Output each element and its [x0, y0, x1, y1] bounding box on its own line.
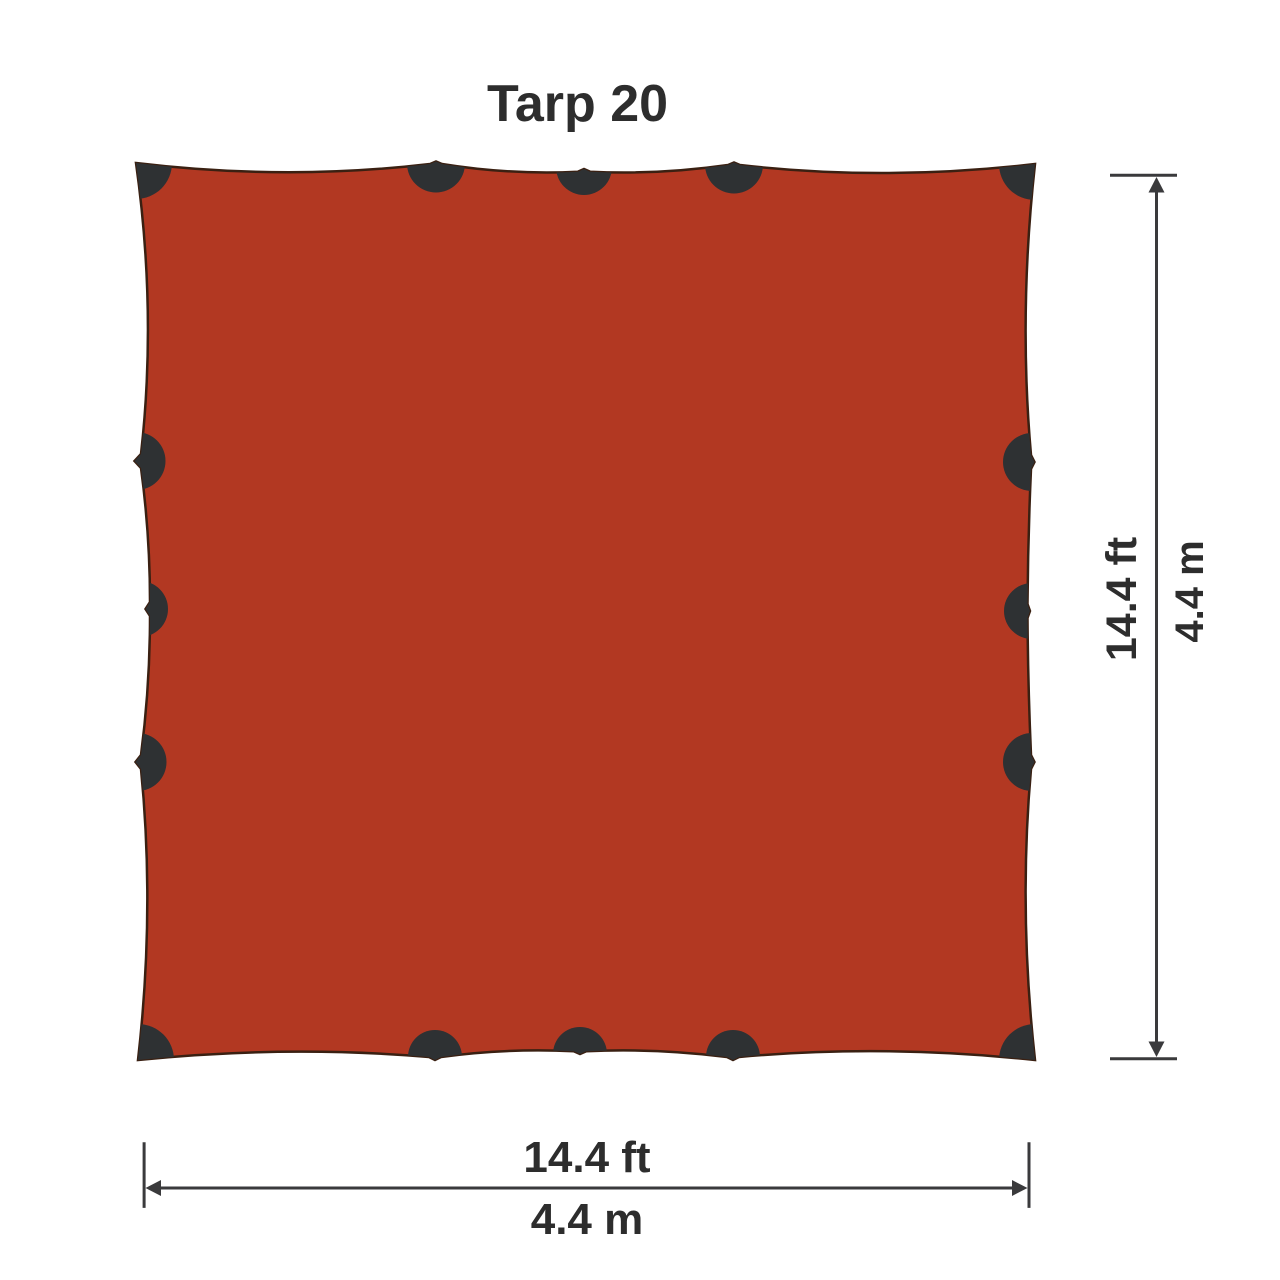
svg-text:14.4 ft: 14.4 ft: [1098, 537, 1146, 661]
svg-text:4.4 m: 4.4 m: [1168, 540, 1212, 642]
svg-text:4.4 m: 4.4 m: [531, 1195, 644, 1244]
svg-text:Tarp 20: Tarp 20: [487, 75, 668, 133]
svg-text:14.4 ft: 14.4 ft: [523, 1133, 651, 1182]
